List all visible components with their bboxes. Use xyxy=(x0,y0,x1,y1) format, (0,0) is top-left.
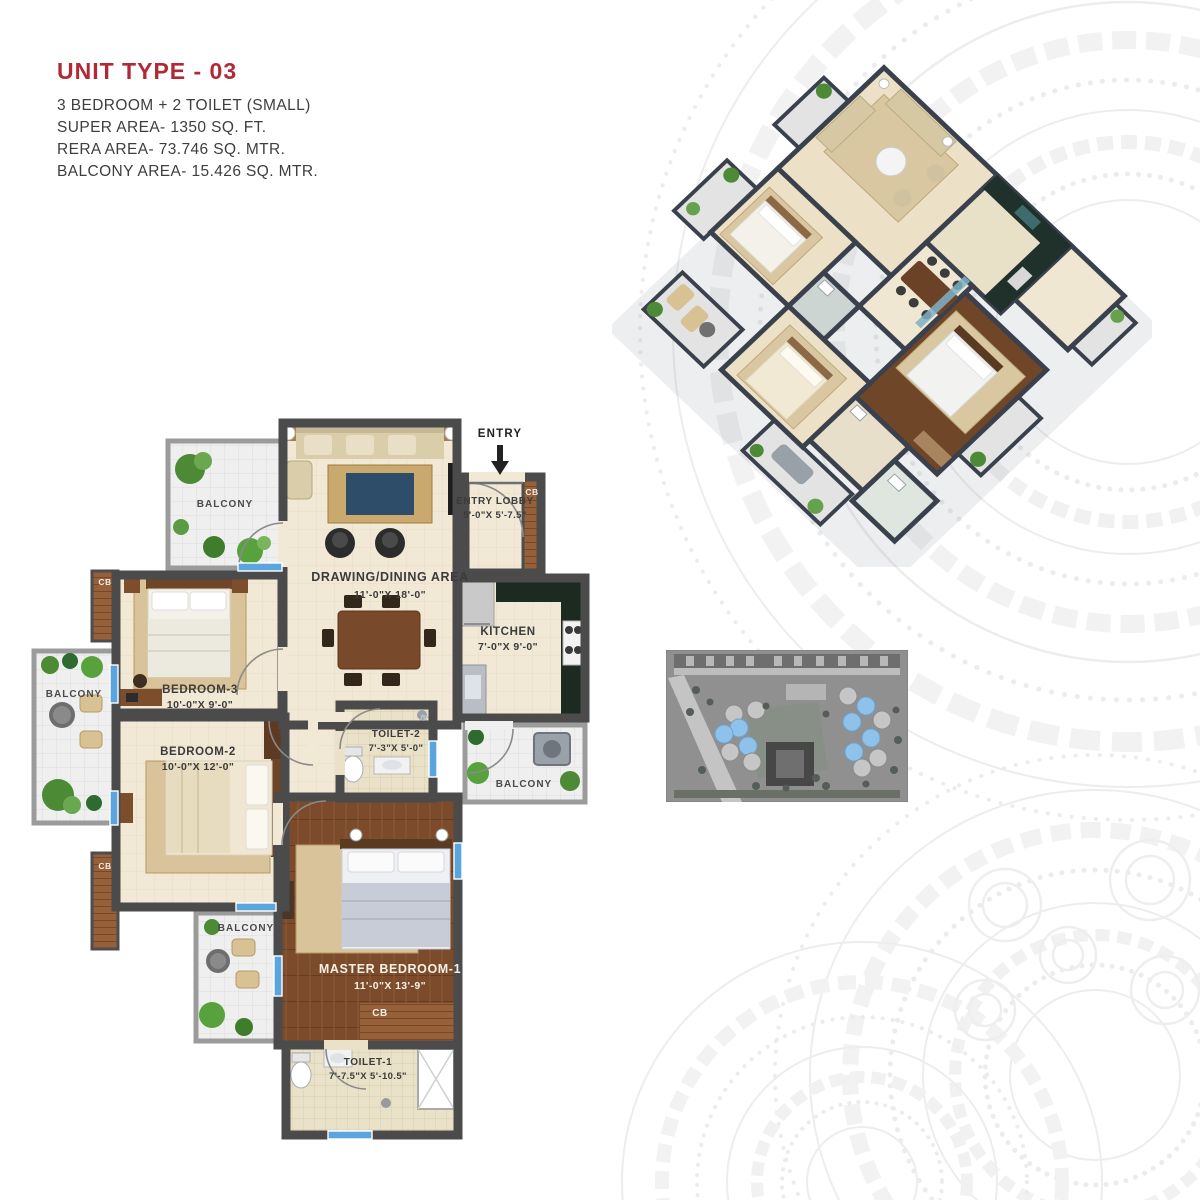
balcony-left xyxy=(34,651,114,823)
cb-bedroom2-label: CB xyxy=(98,861,111,871)
site-plan-aerial-photo xyxy=(666,650,908,802)
siteplan-road-top xyxy=(674,668,900,675)
balcony-top-left-label: BALCONY xyxy=(197,499,253,510)
page-title: UNIT TYPE - 03 xyxy=(57,58,318,85)
kitchen-label: KITCHEN xyxy=(480,626,535,638)
floor-plan-3d-render xyxy=(612,52,1152,567)
toilet1-label: TOILET-1 xyxy=(344,1057,393,1068)
bedroom3-dim: 10'-0"X 9'-0" xyxy=(167,699,233,711)
entry-label: ENTRY xyxy=(478,428,523,440)
header-block: UNIT TYPE - 03 3 BEDROOM + 2 TOILET (SMA… xyxy=(57,58,318,183)
toilet2-dim: 7'-3"X 5'-0" xyxy=(369,743,424,754)
siteplan-club-court xyxy=(776,750,804,778)
balcony-right xyxy=(465,725,585,802)
cb-master-label: CB xyxy=(372,1008,387,1019)
spec-configuration: 3 BEDROOM + 2 TOILET (SMALL) xyxy=(57,95,318,117)
cb-entry-label: CB xyxy=(525,487,538,497)
bedroom2-dim: 10'-0"X 12'-0" xyxy=(162,761,235,773)
master-bedroom-furniture xyxy=(282,829,452,953)
balcony-left-label: BALCONY xyxy=(46,689,102,700)
spec-super-area: SUPER AREA- 1350 SQ. FT. xyxy=(57,117,318,139)
entry-arrow-icon xyxy=(491,445,509,475)
toilet2-label: TOILET-2 xyxy=(372,729,421,740)
bedroom2-label: BEDROOM-2 xyxy=(160,746,236,758)
drawing-room-label: DRAWING/DINING AREA xyxy=(311,570,468,584)
drawing-room-dim: 11'-0"X 18'-0" xyxy=(354,589,426,601)
entry-lobby-dim: 5'-0"X 5'-7.5" xyxy=(463,510,527,521)
brochure-page: UNIT TYPE - 03 3 BEDROOM + 2 TOILET (SMA… xyxy=(0,0,1200,1200)
spec-rera-area: RERA AREA- 73.746 SQ. MTR. xyxy=(57,139,318,161)
master-bedroom-label: MASTER BEDROOM-1 xyxy=(319,962,461,976)
render-unit xyxy=(612,52,1147,567)
siteplan-plaza xyxy=(786,684,826,700)
entry-lobby-label: ENTRY LOBBY xyxy=(456,496,534,507)
floor-plan-2d: ENTRY BALCONY BALCONY BALCONY BALCONY DR… xyxy=(28,403,603,1148)
master-bedroom-dim: 11'-0"X 13'-9" xyxy=(354,980,426,992)
balcony-bottom-label: BALCONY xyxy=(218,923,274,934)
kitchen-dim: 7'-0"X 9'-0" xyxy=(478,641,538,653)
bedroom3-label: BEDROOM-3 xyxy=(162,684,238,696)
spec-balcony-area: BALCONY AREA- 15.426 SQ. MTR. xyxy=(57,161,318,183)
cb-bedroom3-label: CB xyxy=(98,577,111,587)
balcony-right-label: BALCONY xyxy=(496,779,552,790)
toilet1-dim: 7'-7.5"X 5'-10.5" xyxy=(329,1071,407,1082)
